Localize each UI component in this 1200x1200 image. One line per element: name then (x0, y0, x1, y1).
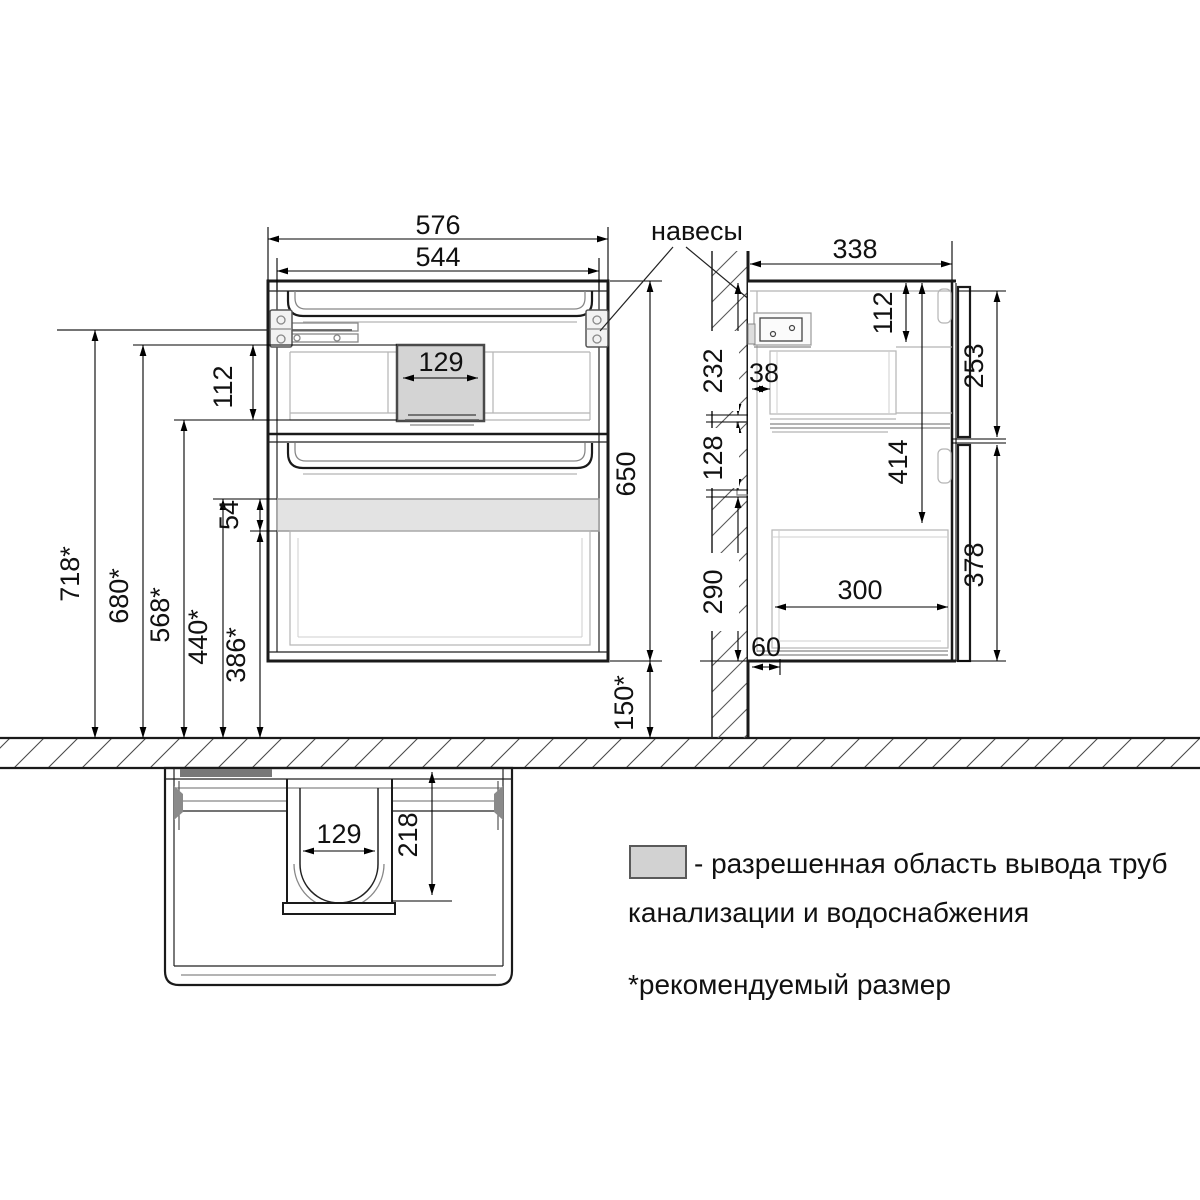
bottom-view: 129 218 (165, 768, 512, 985)
dim-label-440: 440* (183, 609, 213, 665)
dim-label-218: 218 (393, 812, 423, 857)
floor-section (0, 738, 1200, 768)
dim-upper-front-253: 253 (959, 291, 997, 437)
legend-line1: - разрешенная область вывода труб (694, 848, 1167, 879)
technical-drawing-page: 129 576 544 650 150* (0, 0, 1200, 1200)
dim-label-38: 38 (749, 358, 779, 388)
dim-label-129-bottom: 129 (316, 819, 361, 849)
dim-label-718: 718* (55, 546, 85, 602)
lower-drawer-box (290, 531, 590, 645)
dim-label-253: 253 (959, 343, 989, 388)
wall-bracket-icon (748, 313, 811, 347)
upper-drawer-handle-groove (288, 291, 592, 316)
dim-label-386: 386* (221, 627, 251, 683)
dim-label-680: 680* (104, 568, 134, 624)
dim-front-width-inner: 544 (277, 242, 599, 290)
legend-line2: канализации и водоснабжения (628, 897, 1029, 928)
dim-label-378: 378 (959, 542, 989, 587)
lower-drawer-handle-groove (288, 443, 592, 468)
dim-label-floor-clearance: 150* (609, 675, 639, 731)
dim-floor-clearance: 150* (609, 661, 650, 738)
dim-cutout-depth-218: 218 (392, 772, 452, 901)
drawer-slide-rail (57, 323, 358, 342)
vanity-installation-drawing: 129 576 544 650 150* (0, 0, 1200, 1200)
dim-label-112-side: 112 (868, 291, 898, 334)
dim-label-290: 290 (698, 569, 728, 614)
front-view: 129 (57, 281, 608, 661)
dim-wall-128: 128 (698, 422, 739, 490)
dim-label-pipe-zone-width: 129 (418, 347, 463, 377)
pipe-zone-band (277, 499, 599, 531)
dim-label-112-left: 112 (208, 365, 238, 408)
dim-side-depth: 338 (750, 234, 952, 280)
legend-note: *рекомендуемый размер (628, 969, 951, 1000)
dim-side-bottom-clearance-60: 60 (751, 632, 781, 675)
dim-label-54: 54 (214, 500, 244, 530)
dim-lower-front-378: 378 (959, 445, 997, 661)
dim-label-width-inner: 544 (415, 242, 460, 272)
dim-height-718: 718* (55, 330, 95, 738)
dim-label-128: 128 (698, 435, 728, 480)
floor-hatch (0, 738, 1200, 768)
dim-front-height: 650 (610, 281, 662, 661)
dim-height-440: 440* (183, 499, 277, 738)
dim-front-zone-height-112: 112 (208, 345, 253, 420)
hinge-right-icon (586, 310, 608, 347)
hinges-label: навесы (651, 216, 743, 246)
dim-label-300: 300 (837, 575, 882, 605)
dim-side-back-clearance-38: 38 (749, 358, 779, 389)
legend-swatch (630, 846, 686, 878)
mounting-rail-bar (180, 769, 272, 777)
dim-band-height-54: 54 (214, 499, 260, 531)
dim-label-60: 60 (751, 632, 781, 662)
dim-label-depth: 338 (832, 234, 877, 264)
legend: - разрешенная область вывода труб канали… (628, 846, 1167, 1000)
front-carcass (268, 281, 608, 661)
dim-label-568: 568* (145, 587, 175, 643)
dim-label-414: 414 (883, 439, 913, 484)
dim-cutout-width-129: 129 (303, 819, 375, 851)
dim-label-width-total: 576 (415, 210, 460, 240)
dim-label-height: 650 (611, 451, 641, 496)
hinge-left-icon (270, 310, 292, 347)
dim-label-232: 232 (698, 348, 728, 393)
